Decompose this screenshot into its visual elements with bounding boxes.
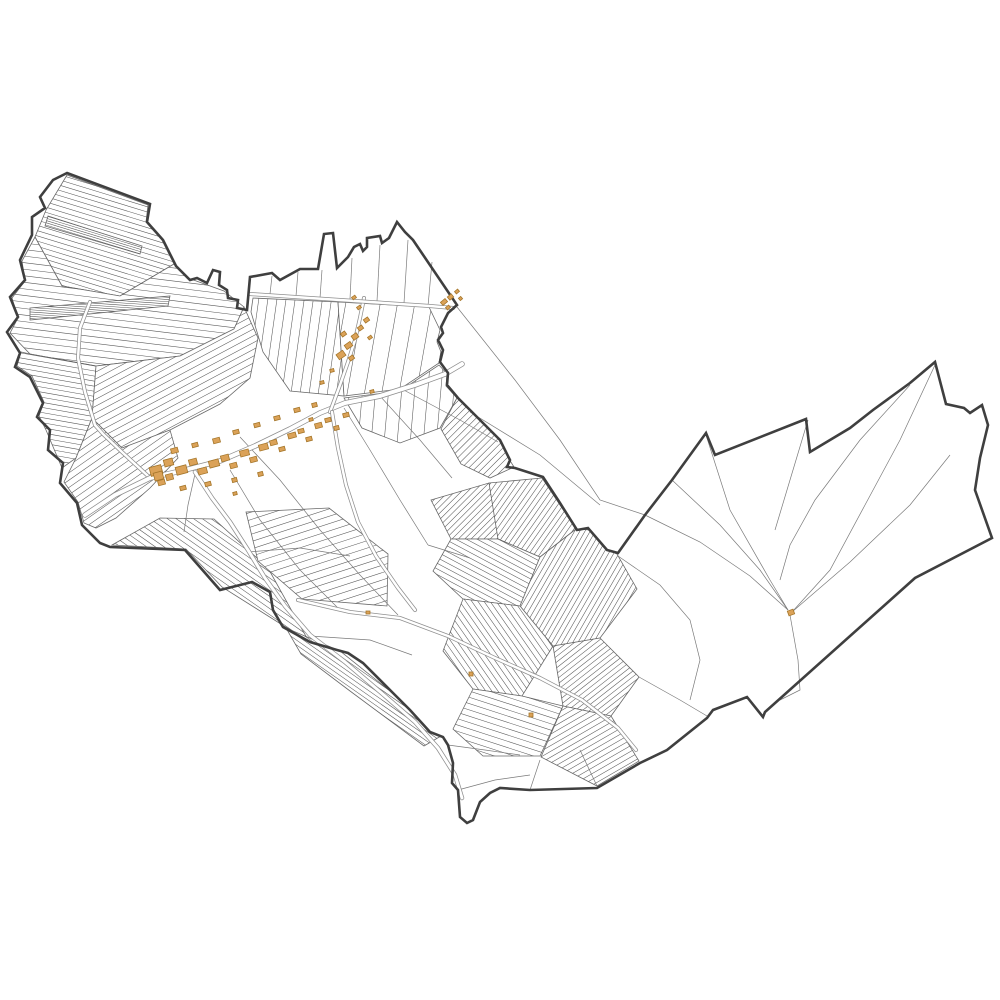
building	[153, 471, 164, 481]
building	[370, 390, 375, 394]
building	[312, 402, 318, 407]
building	[233, 492, 238, 496]
building	[320, 381, 325, 385]
building	[469, 672, 473, 676]
building	[334, 425, 340, 430]
building	[258, 471, 264, 476]
building	[366, 611, 370, 614]
parcel-map-svg	[0, 0, 1000, 1000]
building	[529, 713, 533, 717]
building	[165, 473, 173, 481]
building	[232, 477, 238, 482]
cadastral-map-canvas	[0, 0, 1000, 1000]
building	[309, 418, 314, 422]
building	[330, 369, 335, 373]
